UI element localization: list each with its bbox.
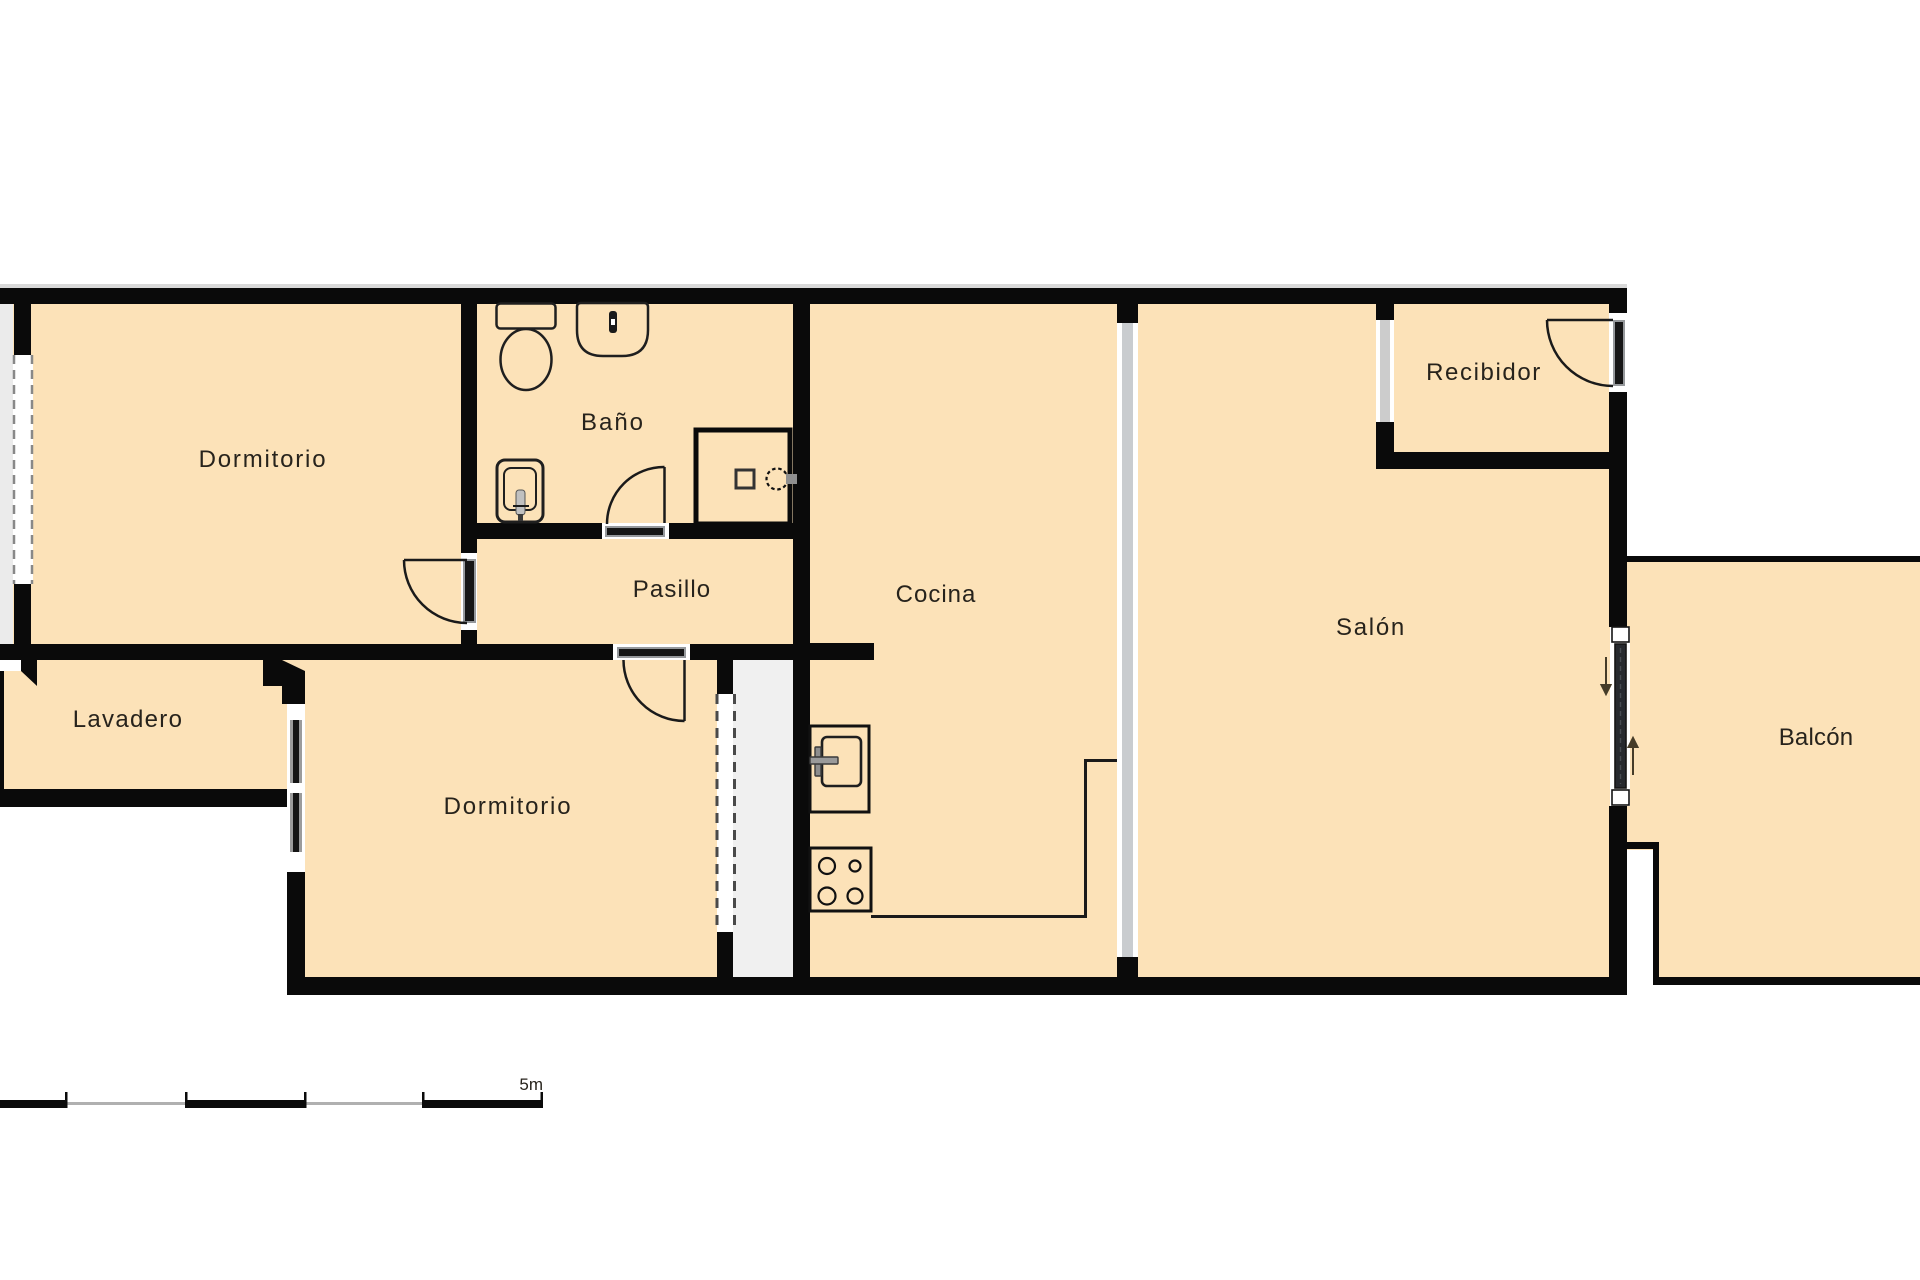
svg-text:Baño: Baño	[581, 409, 645, 436]
svg-text:Dormitorio: Dormitorio	[444, 793, 573, 820]
svg-text:Salón: Salón	[1336, 614, 1406, 641]
svg-text:Pasillo: Pasillo	[633, 576, 711, 603]
svg-text:Lavadero: Lavadero	[73, 706, 183, 733]
svg-text:Dormitorio: Dormitorio	[199, 446, 328, 473]
svg-text:Balcón: Balcón	[1779, 724, 1854, 751]
svg-text:5m: 5m	[519, 1075, 543, 1094]
svg-text:Cocina: Cocina	[896, 581, 977, 608]
svg-text:Recibidor: Recibidor	[1426, 359, 1542, 386]
